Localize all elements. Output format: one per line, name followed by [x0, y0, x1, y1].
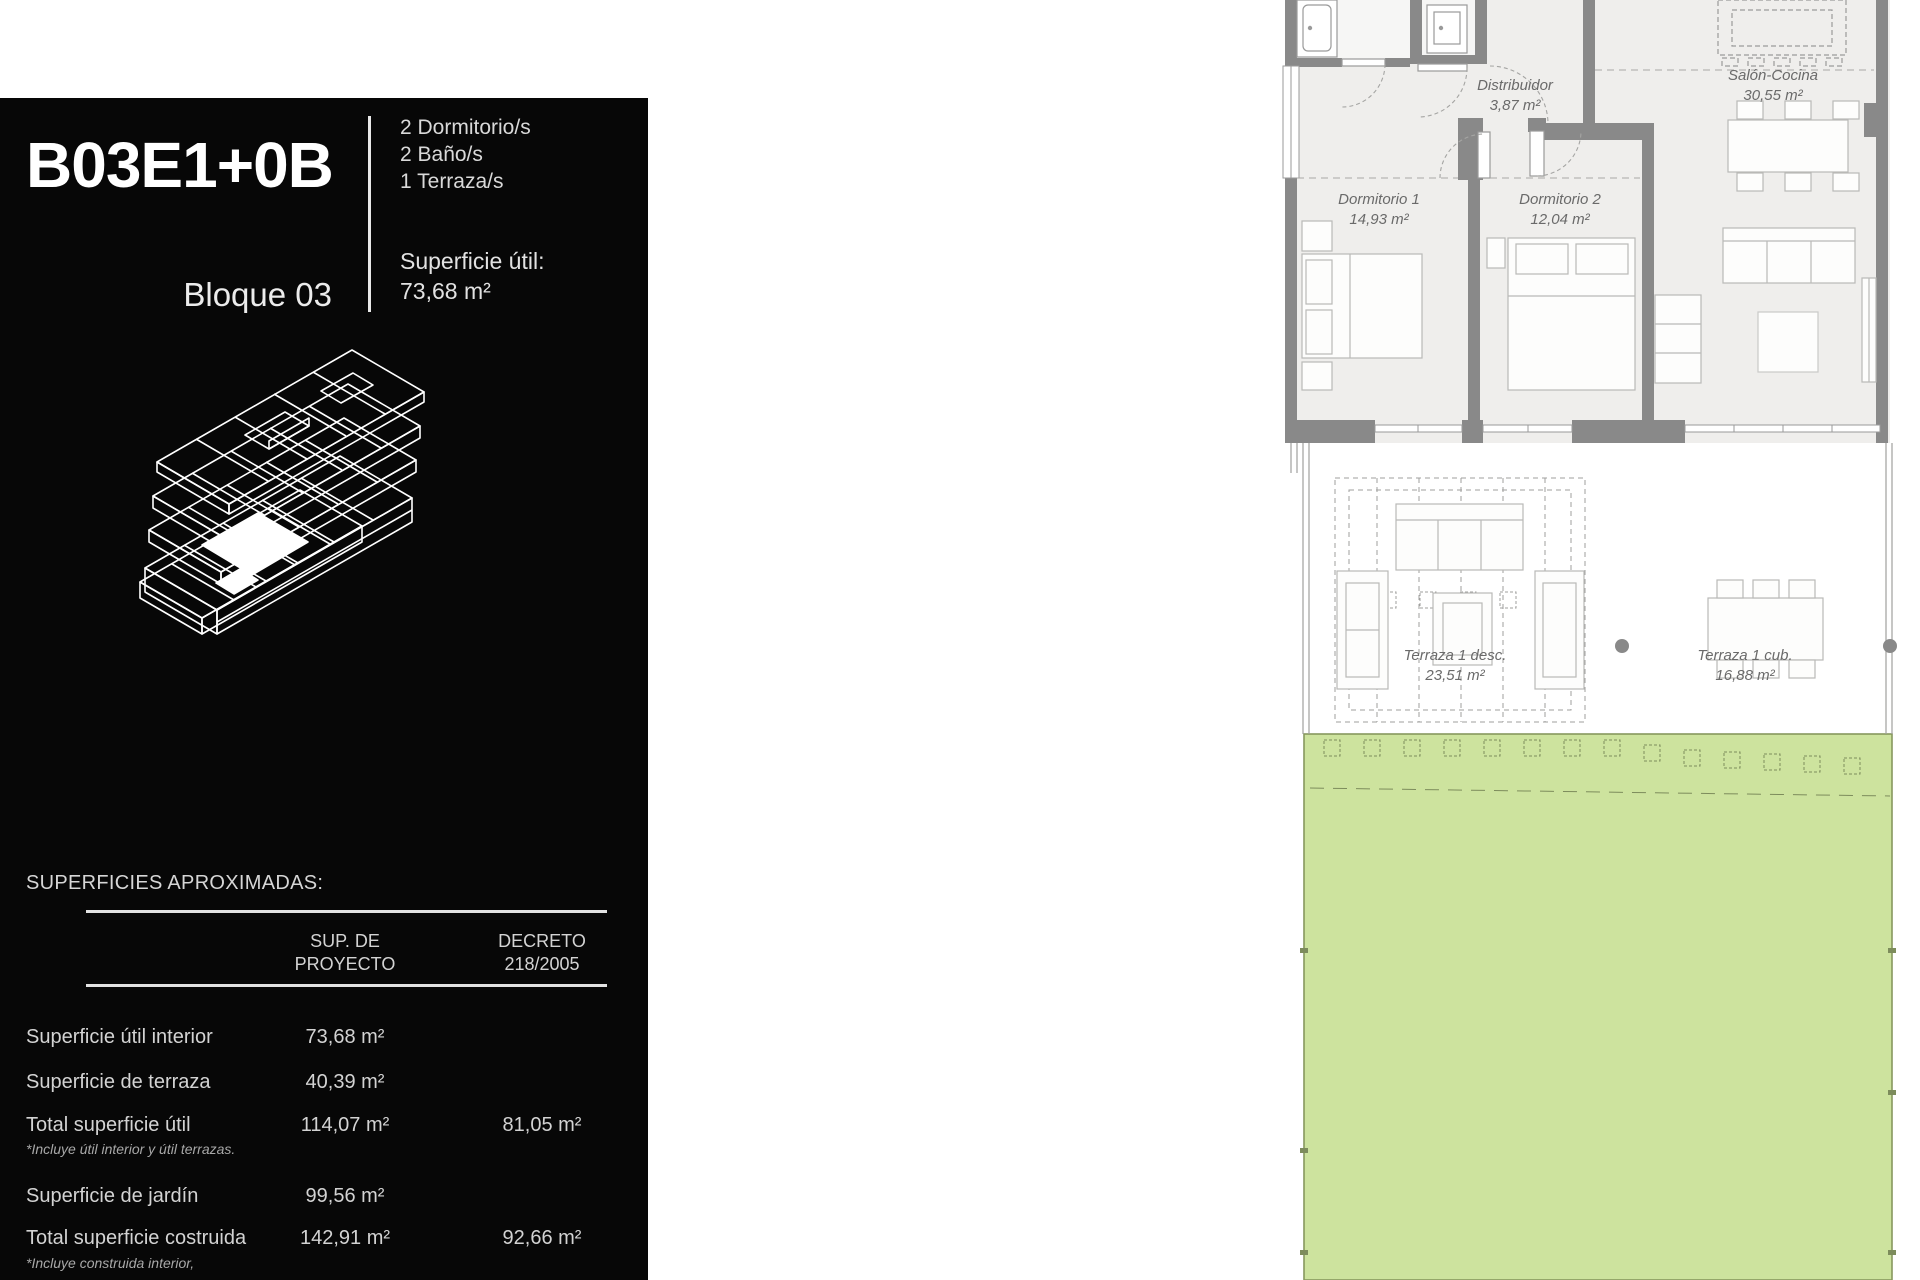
surfaces-title: SUPERFICIES APROXIMADAS:: [26, 872, 323, 895]
unit-code: B03E1+0B: [26, 128, 333, 202]
table-header-proyecto: SUP. DE PROYECTO: [265, 930, 425, 976]
table-note: *Incluye útil interior y útil terrazas.: [26, 1141, 235, 1157]
table-header-decreto: DECRETO 218/2005: [462, 930, 622, 976]
label-dormitorio-1: Dormitorio 114,93 m²: [1338, 190, 1420, 230]
unit-specs: 2 Dormitorio/s 2 Baño/s 1 Terraza/s: [400, 114, 531, 195]
iso-roof-plate: [95, 330, 424, 514]
spec-bathrooms: 2 Baño/s: [400, 141, 531, 168]
spec-terraces: 1 Terraza/s: [400, 168, 531, 195]
plan-sheet: B03E1+0B 2 Dormitorio/s 2 Baño/s 1 Terra…: [0, 0, 1920, 1280]
table-note: *Incluye construida interior,: [26, 1255, 194, 1271]
useful-area-label: Superficie útil:: [400, 248, 544, 275]
table-rule-bottom: [86, 984, 607, 987]
label-terraza-cub: Terraza 1 cub.16,88 m²: [1697, 646, 1792, 686]
iso-ground-plate-highlight: [140, 490, 362, 634]
floor-plan: Distribuidor3,87 m² Salón-Cocina30,55 m²…: [1240, 0, 1920, 1280]
table-rule-top: [86, 910, 607, 913]
column-dot: [1615, 639, 1629, 653]
divider-line: [368, 116, 371, 312]
useful-area-value: 73,68 m²: [400, 278, 491, 305]
info-panel: B03E1+0B 2 Dormitorio/s 2 Baño/s 1 Terra…: [0, 98, 648, 1280]
label-dormitorio-2: Dormitorio 212,04 m²: [1519, 190, 1601, 230]
column-dot: [1883, 639, 1897, 653]
label-salon-cocina: Salón-Cocina30,55 m²: [1728, 66, 1818, 106]
bed-dormitorio-2: [1487, 238, 1635, 390]
iso-floor-plate-2: [153, 384, 420, 550]
garden-area: [1300, 734, 1896, 1280]
label-distribuidor: Distribuidor3,87 m²: [1477, 76, 1553, 116]
spec-bedrooms: 2 Dormitorio/s: [400, 114, 531, 141]
isometric-building-diagram: [95, 330, 465, 810]
label-terraza-desc: Terraza 1 desc.23,51 m²: [1404, 646, 1507, 686]
block-name: Bloque 03: [120, 276, 332, 314]
